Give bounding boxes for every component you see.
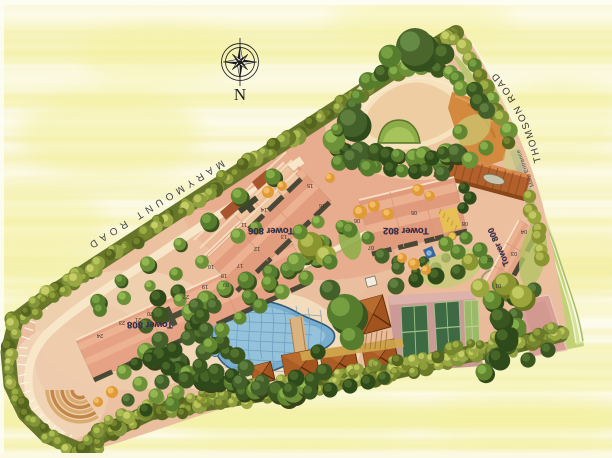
svg-text:08: 08 [462, 220, 468, 226]
svg-text:12: 12 [254, 245, 260, 251]
svg-text:19: 19 [202, 283, 208, 289]
svg-text:23: 23 [119, 319, 125, 325]
svg-text:14: 14 [261, 206, 267, 212]
svg-text:05: 05 [411, 209, 417, 215]
svg-text:13: 13 [281, 233, 287, 239]
svg-text:03: 03 [511, 250, 517, 256]
svg-text:20: 20 [147, 310, 153, 316]
svg-text:Tower 802: Tower 802 [383, 225, 429, 236]
svg-text:04: 04 [521, 228, 527, 234]
svg-text:Tower 808: Tower 808 [127, 319, 173, 330]
svg-text:24: 24 [97, 332, 103, 338]
svg-text:15: 15 [307, 182, 313, 188]
svg-text:18: 18 [221, 272, 227, 278]
svg-text:09: 09 [223, 281, 229, 287]
svg-text:11: 11 [241, 221, 247, 227]
svg-text:01: 01 [495, 282, 501, 288]
svg-text:22: 22 [183, 293, 189, 299]
svg-text:07: 07 [368, 244, 374, 250]
svg-text:06: 06 [354, 217, 360, 223]
svg-text:N: N [234, 85, 246, 104]
svg-text:02: 02 [487, 256, 493, 262]
svg-text:21: 21 [135, 316, 141, 322]
svg-text:16: 16 [319, 202, 325, 208]
svg-text:17: 17 [237, 262, 243, 268]
svg-text:10: 10 [208, 263, 214, 269]
